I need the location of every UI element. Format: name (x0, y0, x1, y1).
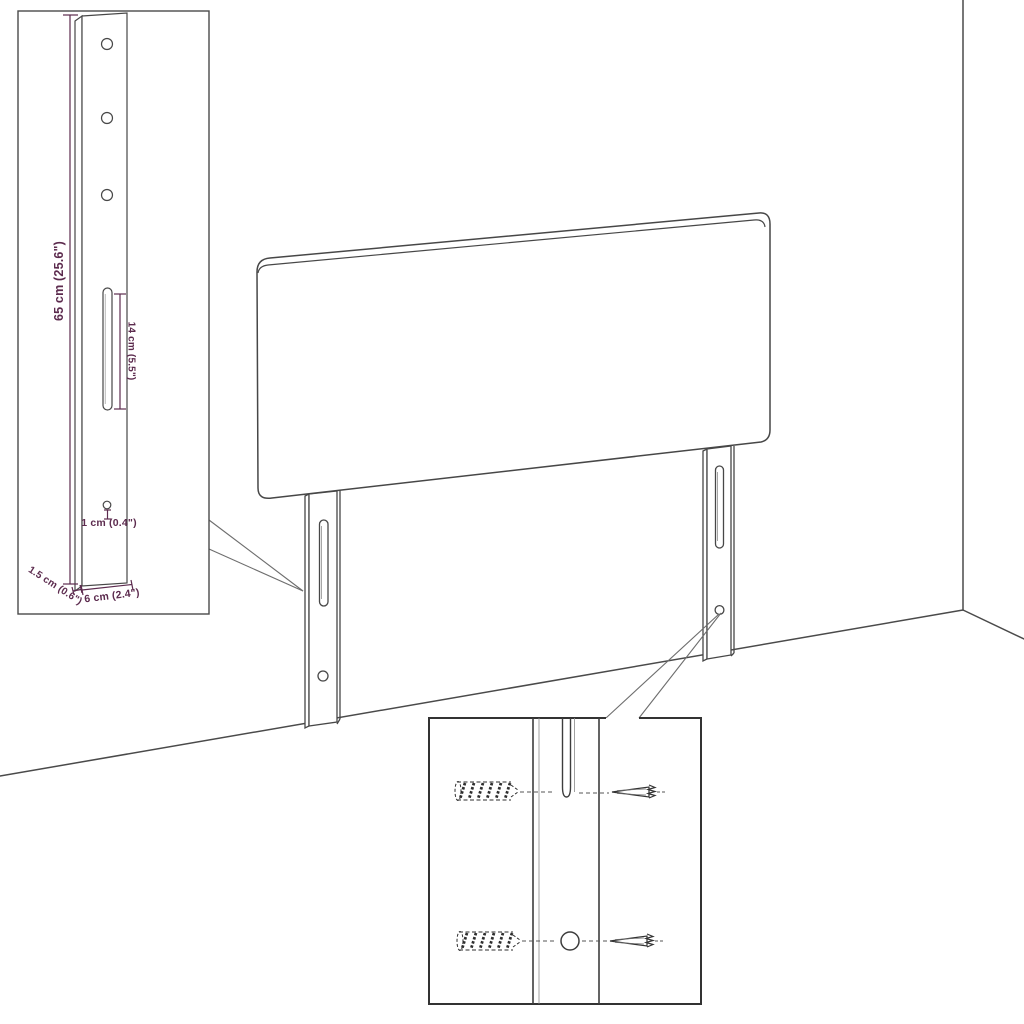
inset-bracket (75, 13, 127, 591)
bracket-hole-1 (102, 39, 113, 50)
dim-label-hole-offset: 1 cm (0.4") (81, 517, 137, 529)
assembly-diagram: 65 cm (25.6") 14 cm (5.5") 1 cm (0.4") 1… (0, 0, 1024, 1024)
left-mounting-leg (305, 489, 340, 728)
bracket-hole-3 (102, 190, 113, 201)
detail-border (429, 718, 701, 1004)
right-mounting-leg (703, 446, 734, 661)
bracket-side-face (75, 16, 82, 591)
leg-screw-hole (715, 606, 724, 615)
headboard-outline (257, 213, 770, 498)
inset-leader-lines (209, 520, 303, 591)
detail-callout-box (429, 718, 701, 1004)
leg-slot (716, 466, 724, 548)
detail-leader-lines (606, 613, 721, 718)
diagram-canvas (0, 0, 1024, 1024)
dim-label-slot-length: 14 cm (5.5") (126, 322, 137, 381)
bracket-hole-2 (102, 113, 113, 124)
leg-slot (320, 520, 329, 606)
dim-label-bracket-height: 65 cm (25.6") (52, 241, 66, 321)
bracket-slot (103, 288, 112, 410)
leg-screw-hole (318, 671, 328, 681)
floor-line-right (963, 610, 1024, 639)
headboard-panel (257, 213, 770, 498)
bracket-small-hole (103, 501, 111, 509)
